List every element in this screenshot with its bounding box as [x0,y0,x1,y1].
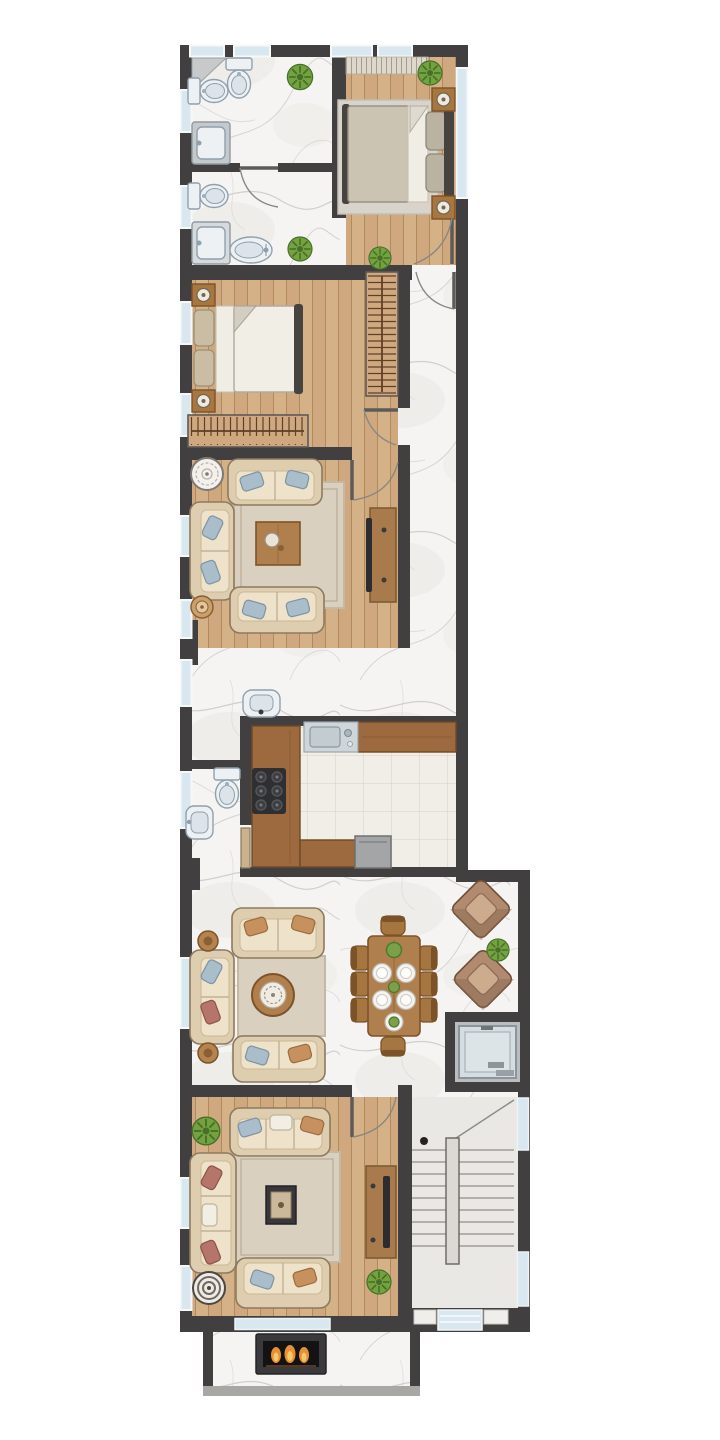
tray-table [266,1186,296,1224]
centerpiece [389,982,400,993]
wall-corridor-a [398,280,410,408]
window-stair-upper [518,1098,529,1150]
chair [351,972,370,996]
pillow [194,310,214,346]
nightstand [432,196,455,219]
wall-living2-stairs [398,1085,412,1316]
plant [367,1270,391,1294]
wall-kitchen-bottom [240,867,456,877]
window [234,46,270,57]
wall-annex-top [456,870,530,882]
tv [366,518,372,592]
window [378,46,412,57]
wall-stub-wc [180,858,200,890]
washbasin [186,806,213,839]
wall-bedroom2-living1 [192,447,352,460]
centerpiece [387,943,402,958]
plant [288,237,312,261]
counter-bottom [300,840,355,867]
tv [383,1176,390,1248]
nightstand [192,284,215,306]
toilet-icon [214,768,240,808]
window [181,660,192,706]
door-slab [241,828,250,868]
pillow [194,350,214,386]
terrace-parapet [203,1386,420,1396]
floor-plan [0,0,720,1440]
plant [487,939,509,961]
wall-kitchen-left [240,716,252,825]
pillow [202,1204,217,1226]
plant [192,1117,220,1145]
window [190,46,224,57]
bed-headboard [444,104,454,204]
tv-console [366,1166,396,1258]
plate [397,991,416,1010]
kitchen-sink [304,722,358,752]
plate [373,964,392,983]
sofa-bottom [230,587,324,633]
terrace [256,1334,326,1374]
bed-duvet [348,106,410,202]
toilet-icon [226,58,252,98]
plant [287,64,312,89]
centerpiece [385,1013,403,1031]
floor-plan-canvas [0,0,720,1440]
nightstand [192,390,215,412]
chair [351,946,370,970]
window-bottom [235,1319,330,1330]
chair [418,998,437,1022]
chair [418,946,437,970]
sofa-top [230,1108,330,1156]
side-table [198,931,218,951]
wall-terrace-left [203,1332,213,1394]
chair [351,998,370,1022]
appliance [355,836,391,868]
wall-washbasin [243,690,280,717]
nightstand [432,88,455,111]
double-bed [342,104,454,204]
sofa-left [190,1153,236,1273]
chair [418,972,437,996]
curtain-strip [346,57,428,74]
window-stair-lower [518,1252,529,1306]
toilet-icon [188,78,228,104]
window [181,302,192,344]
family-lounge [190,908,325,1082]
window [457,68,468,198]
round-coffee-table [252,974,294,1016]
sofa-left [190,502,234,600]
tv-console [366,508,396,602]
chair [381,916,405,935]
window [181,600,192,638]
oval-bidet [230,237,272,263]
sofa-bottom [233,1036,325,1082]
ornate-side-table [191,458,223,490]
sofa-bottom [236,1258,330,1308]
window [331,46,372,57]
washbasin [192,222,230,264]
wall-family-living2 [180,1085,352,1097]
wall-bath-divider-b [278,163,332,172]
pillow [270,1115,292,1130]
fireplace [256,1334,326,1374]
wardrobe-bottom [188,415,308,447]
elevator [445,1012,530,1092]
plate [397,964,416,983]
newel-dot [420,1137,428,1145]
coffee-table [256,522,300,565]
window [181,1266,192,1310]
pillow [426,154,446,192]
sofa-top [232,908,324,958]
toilet-icon [188,183,228,209]
side-table [198,1043,218,1063]
sofa-top [228,459,322,505]
entry-door [438,1310,482,1330]
stairwell-floor [412,1097,518,1308]
plant [369,247,391,269]
bed-sheet [216,306,234,392]
plant [418,61,442,85]
wall-terrace-right [410,1332,420,1394]
wall-corridor-b [398,445,410,648]
sofa-left [190,950,234,1044]
round-stool [191,596,213,618]
plate [373,991,392,1010]
wardrobe-right [366,272,398,396]
shower-tray [192,122,230,164]
entry-ledge [484,1310,508,1324]
stair-divider [446,1138,459,1264]
bed-footboard [294,304,303,394]
chair [381,1037,405,1056]
cooktop [252,768,286,814]
pillow [426,112,446,150]
striped-side-table [193,1272,225,1304]
entry-ledge [414,1310,436,1324]
